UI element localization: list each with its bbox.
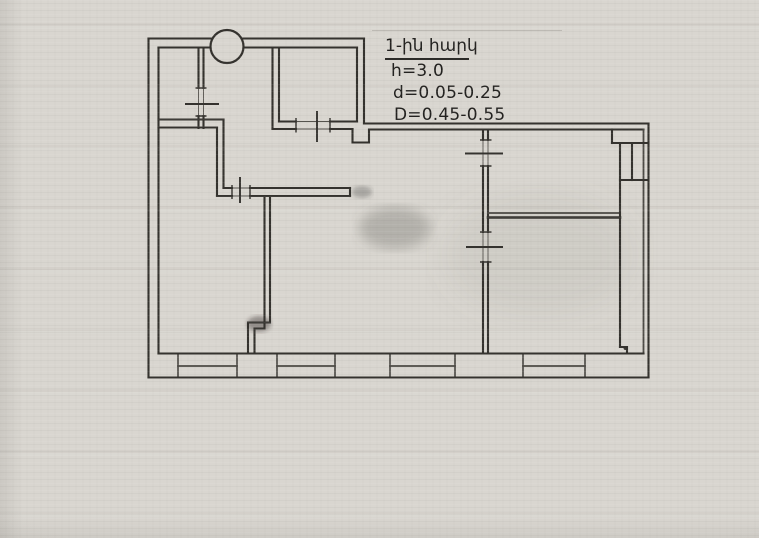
spec-big-d-range: D=0.45-0.55 bbox=[394, 105, 505, 125]
door-threshold bbox=[232, 188, 250, 196]
scan-smudges bbox=[247, 186, 635, 350]
door-threshold bbox=[296, 122, 330, 130]
door-jamb-mark bbox=[232, 185, 250, 199]
facade-step-notch bbox=[353, 129, 370, 143]
bottom-wall-windows bbox=[178, 354, 585, 378]
floor-title: 1-ին հարկ bbox=[385, 36, 469, 60]
scan-smudge bbox=[352, 186, 372, 198]
floor-plan-drawing bbox=[0, 0, 759, 538]
scan-smudge bbox=[445, 193, 635, 317]
upper-middle-room-walls bbox=[273, 48, 358, 133]
door-ticks bbox=[185, 104, 503, 247]
door-jamb-mark bbox=[296, 118, 330, 133]
door-threshold bbox=[199, 88, 204, 116]
spec-d-range: d=0.05-0.25 bbox=[393, 83, 502, 103]
door-jamb-mark bbox=[196, 88, 207, 116]
top-left-room-walls bbox=[159, 48, 224, 129]
scan-smudge bbox=[359, 207, 431, 249]
column-circle bbox=[211, 30, 244, 63]
scan-smudge bbox=[247, 316, 271, 332]
scanned-floor-plan-page: 1-ին հարկ h=3.0 d=0.05-0.25 D=0.45-0.55 bbox=[0, 0, 759, 538]
spec-height: h=3.0 bbox=[391, 61, 444, 81]
